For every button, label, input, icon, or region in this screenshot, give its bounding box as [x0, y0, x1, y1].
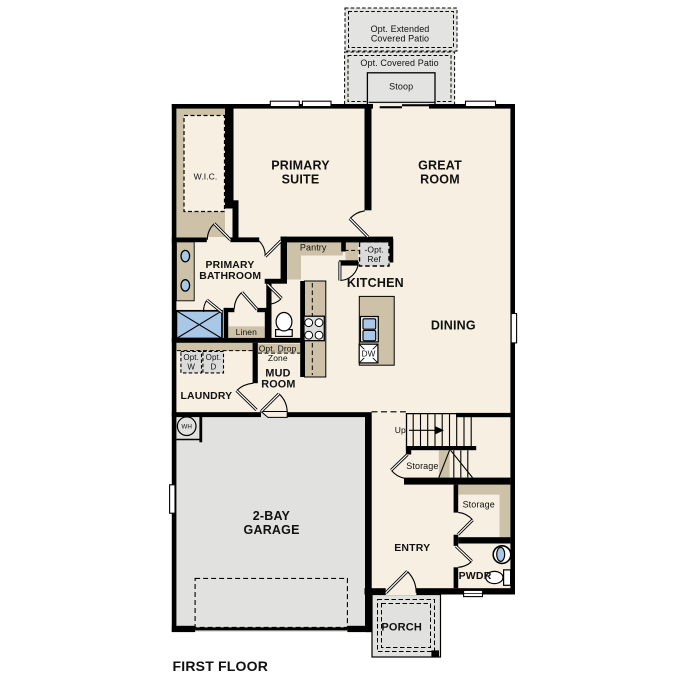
svg-text:W.I.C.: W.I.C. — [194, 171, 218, 181]
svg-text:DW: DW — [362, 350, 376, 359]
svg-text:ENTRY: ENTRY — [394, 542, 430, 554]
svg-text:Opt.: Opt. — [183, 353, 199, 362]
svg-text:Ref: Ref — [367, 254, 381, 264]
svg-text:Storage: Storage — [406, 461, 438, 471]
svg-text:Linen: Linen — [236, 327, 257, 337]
svg-text:DINING: DINING — [431, 318, 476, 332]
svg-text:BATHROOM: BATHROOM — [199, 271, 261, 282]
svg-text:LAUNDRY: LAUNDRY — [180, 391, 232, 402]
svg-text:GARAGE: GARAGE — [244, 523, 300, 537]
svg-text:WH: WH — [181, 423, 192, 430]
svg-text:Opt.: Opt. — [206, 353, 222, 362]
svg-text:Covered Patio: Covered Patio — [371, 33, 429, 43]
svg-text:PRIMARY: PRIMARY — [206, 260, 255, 271]
svg-text:ROOM: ROOM — [261, 379, 295, 391]
svg-text:Opt. Covered Patio: Opt. Covered Patio — [360, 58, 438, 68]
svg-text:Storage: Storage — [463, 499, 495, 509]
svg-text:PWDR: PWDR — [459, 570, 492, 582]
svg-text:PORCH: PORCH — [381, 622, 422, 634]
svg-text:Pantry: Pantry — [300, 242, 327, 252]
svg-text:Up: Up — [395, 425, 406, 435]
svg-text:ROOM: ROOM — [420, 173, 460, 187]
svg-text:KITCHEN: KITCHEN — [347, 276, 404, 290]
svg-text:Stoop: Stoop — [389, 81, 413, 91]
svg-text:Zone: Zone — [268, 353, 288, 363]
svg-text:Opt. Extended: Opt. Extended — [371, 24, 430, 34]
svg-text:PRIMARY: PRIMARY — [271, 159, 330, 173]
svg-text:W: W — [187, 362, 195, 371]
svg-text:GREAT: GREAT — [418, 158, 462, 172]
svg-text:2-BAY: 2-BAY — [253, 509, 291, 523]
svg-text:FIRST FLOOR: FIRST FLOOR — [173, 658, 269, 674]
svg-text:D: D — [210, 362, 216, 371]
svg-text:SUITE: SUITE — [282, 172, 320, 186]
